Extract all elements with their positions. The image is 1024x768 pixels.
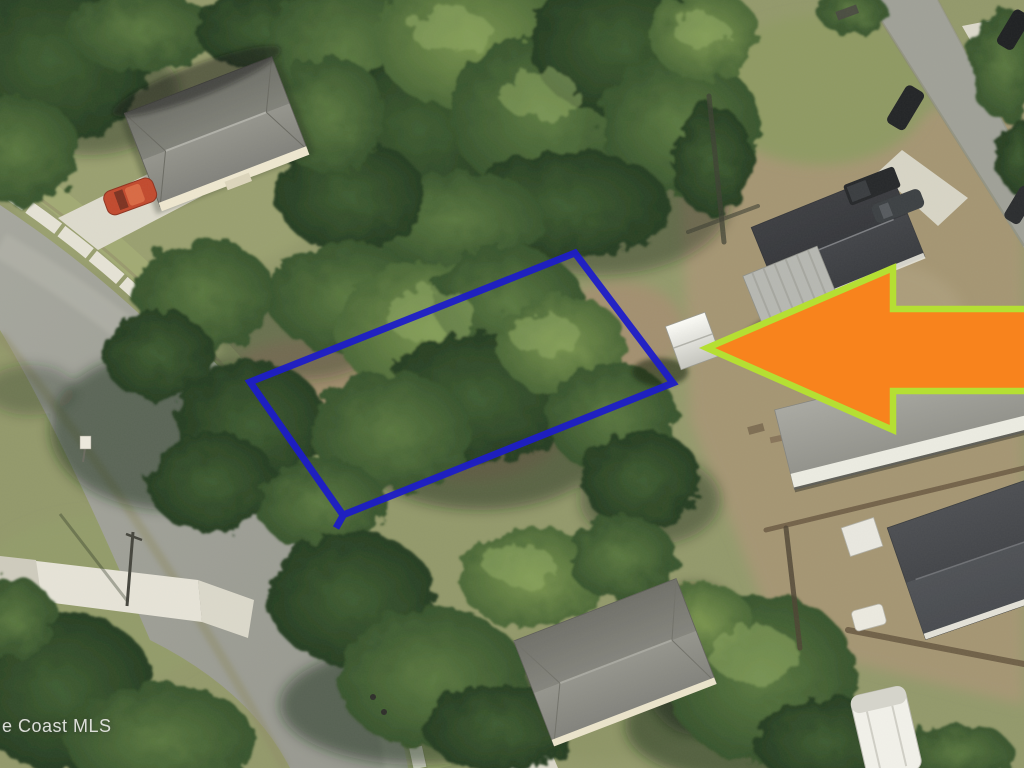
aerial-photo: e Coast MLS bbox=[0, 0, 1024, 768]
aerial-scene bbox=[0, 0, 1024, 768]
watermark: e Coast MLS bbox=[2, 716, 112, 737]
